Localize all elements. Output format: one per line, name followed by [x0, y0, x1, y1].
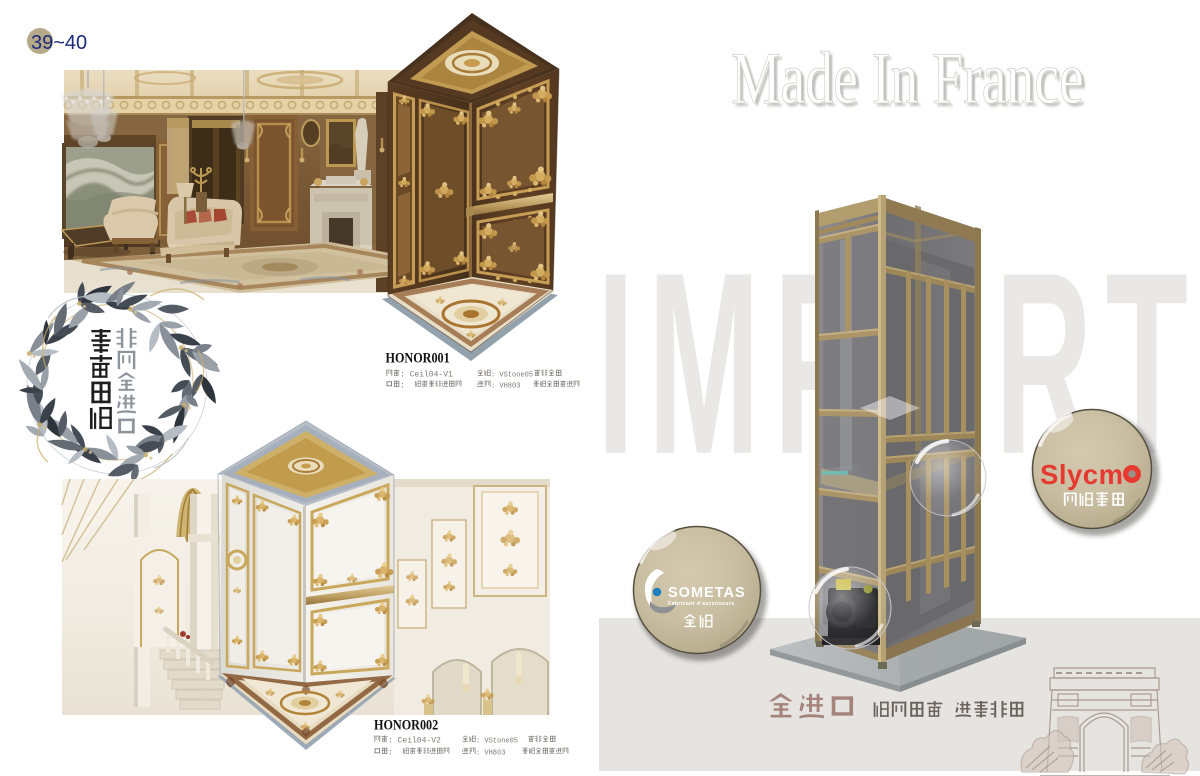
- svg-text:: VH803: : VH803: [476, 750, 505, 758]
- svg-text:HONOR002: HONOR002: [374, 717, 438, 733]
- svg-text::: :: [388, 749, 393, 758]
- svg-text:39~40: 39~40: [31, 32, 87, 54]
- svg-text:SOMETAS: SOMETAS: [668, 585, 746, 601]
- svg-text:Slycm: Slycm: [1040, 459, 1124, 490]
- svg-text:Fabricant d'ascenseurs: Fabricant d'ascenseurs: [668, 601, 735, 607]
- svg-text:: Ceil04-V1: : Ceil04-V1: [400, 371, 453, 380]
- svg-text:: Ceil04-V2: : Ceil04-V2: [388, 737, 441, 746]
- svg-text:Made In France: Made In France: [731, 39, 1084, 120]
- svg-text:: VStone05: : VStone05: [491, 372, 533, 380]
- svg-text:: VStone05: : VStone05: [476, 738, 518, 746]
- svg-text::: :: [400, 382, 405, 391]
- svg-text:HONOR001: HONOR001: [386, 350, 450, 366]
- svg-text:: VH803: : VH803: [491, 383, 520, 391]
